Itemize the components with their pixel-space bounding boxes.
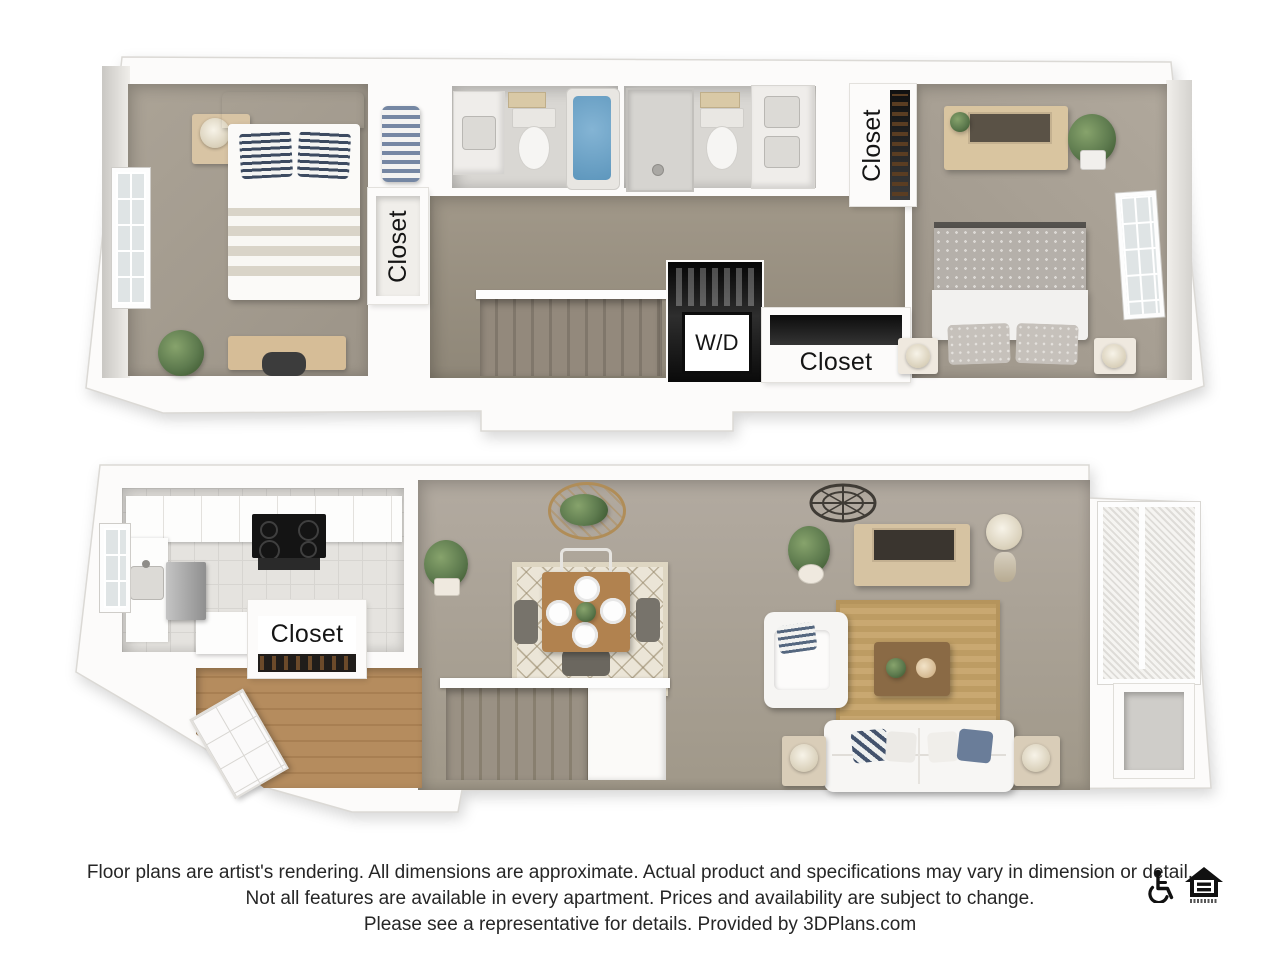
bath-1-toilet-tank <box>512 108 556 128</box>
bath-2-sink <box>764 136 800 168</box>
table-lamp <box>790 744 818 772</box>
desk-chair <box>262 352 306 376</box>
accessibility-wheelchair-icon <box>1146 869 1180 903</box>
place-setting <box>600 598 626 624</box>
entry-closet: Closet <box>248 600 366 678</box>
shower-drain <box>652 164 664 176</box>
plant-pot <box>798 564 824 584</box>
refrigerator <box>166 562 206 620</box>
kitchen-window <box>100 524 130 612</box>
bath-2-sink <box>764 96 800 128</box>
bath-2-toilet <box>706 126 738 170</box>
towel-bar <box>508 92 546 108</box>
towel-bar <box>700 92 740 108</box>
television <box>872 528 956 562</box>
master-closet: Closet <box>850 84 916 206</box>
lower-floor-plan: Closet <box>0 440 1280 860</box>
table-decor <box>886 658 906 678</box>
shower <box>626 88 694 192</box>
stove-oven-front <box>258 558 320 570</box>
plant-pot <box>1080 150 1106 170</box>
stair-landing <box>588 688 666 780</box>
table-lamp <box>1022 744 1050 772</box>
bath-2-toilet-tank <box>700 108 744 128</box>
equal-housing-opportunity-icon <box>1184 866 1224 908</box>
dining-chair <box>562 650 610 676</box>
staircase-upper <box>480 299 662 376</box>
basket-greenery <box>560 494 608 526</box>
floor-lamp-base <box>994 552 1016 582</box>
disclaimer-line-3: Please see a representative for details.… <box>0 912 1280 938</box>
floor-plan-page: Closet W/D <box>0 0 1280 960</box>
table-lamp <box>906 344 930 368</box>
place-setting <box>574 576 600 602</box>
disclaimer-line-1: Floor plans are artist's rendering. All … <box>0 860 1280 886</box>
bed-duvet-stripes <box>228 208 360 276</box>
accent-chair <box>382 106 420 182</box>
floor-lamp <box>986 514 1022 550</box>
stove-cooktop <box>252 514 326 558</box>
plant-pot <box>434 578 460 596</box>
coffee-table <box>874 642 950 696</box>
dining-chair <box>636 598 660 642</box>
bedroom-2-window <box>112 168 150 308</box>
master-pillow <box>1015 323 1078 365</box>
closet-label: Closet <box>800 350 873 375</box>
bed-headboard <box>222 92 364 128</box>
staircase-lower <box>446 688 588 780</box>
dresser-plant <box>950 112 970 132</box>
storage-closet <box>1114 684 1194 778</box>
upper-floor-plan: Closet W/D <box>0 0 1280 440</box>
sofa <box>824 720 1014 792</box>
bath-1-toilet <box>518 126 550 170</box>
kitchen-sink <box>130 566 164 600</box>
throw-pillow <box>850 728 889 764</box>
washer-dryer-grill <box>676 268 754 306</box>
dining-table <box>542 572 630 652</box>
closet-label: Closet <box>386 210 411 283</box>
armchair <box>764 612 848 708</box>
throw-pillow <box>885 731 917 763</box>
bed-pillow <box>239 131 293 180</box>
disclaimer-line-2: Not all features are available in every … <box>0 886 1280 912</box>
bedroom-2-closet: Closet <box>368 188 428 304</box>
screened-porch <box>1098 502 1200 684</box>
closet-shelf <box>770 315 902 345</box>
bathtub-water <box>573 96 611 180</box>
master-bed-blanket <box>934 228 1086 290</box>
table-centerpiece <box>576 602 596 622</box>
table-decor <box>916 658 936 678</box>
wall-face-right <box>1166 80 1192 380</box>
closet-label: Closet <box>271 622 344 647</box>
dining-chair <box>514 600 538 644</box>
hanging-clothes <box>260 656 354 670</box>
disclaimer: Floor plans are artist's rendering. All … <box>0 860 1280 938</box>
place-setting <box>572 622 598 648</box>
potted-plant <box>158 330 204 376</box>
bath-1-sink <box>462 116 496 150</box>
washer-dryer-panel: W/D <box>682 312 752 374</box>
closet-label: Closet <box>860 109 885 182</box>
bed-pillow <box>297 131 351 180</box>
throw-pillow <box>927 731 959 763</box>
stair-wall <box>440 678 670 688</box>
throw-pillow <box>776 621 818 654</box>
table-lamp <box>1102 344 1126 368</box>
washer-dryer-unit: W/D <box>668 262 762 382</box>
throw-pillow <box>956 728 993 763</box>
ceiling-medallion-decor <box>808 482 878 524</box>
washer-dryer-label: W/D <box>695 332 739 354</box>
master-pillow <box>947 323 1010 365</box>
stair-railing <box>476 290 668 299</box>
place-setting <box>546 600 572 626</box>
dresser-mirror <box>968 112 1052 144</box>
hallway-closet: Closet <box>762 308 910 382</box>
hanging-clothes <box>892 94 908 196</box>
kitchen-faucet <box>142 560 150 568</box>
